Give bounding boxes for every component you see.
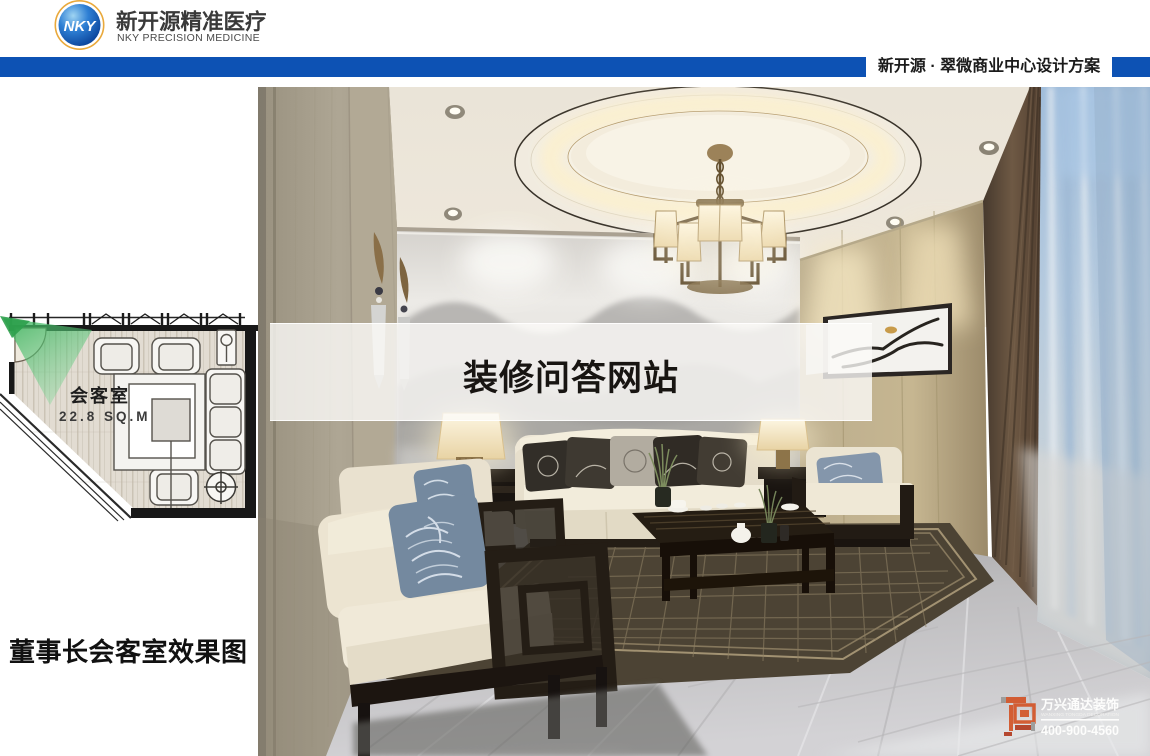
svg-text:会客室: 会客室 [70, 385, 130, 406]
svg-text:NKY: NKY [64, 18, 98, 35]
svg-text:22.8 SQ.M: 22.8 SQ.M [59, 409, 151, 424]
svg-text:WANXING TONGDA DECORATION: WANXING TONGDA DECORATION [1041, 712, 1119, 717]
svg-text:400-900-4560: 400-900-4560 [1041, 722, 1119, 738]
svg-text:万兴通达装饰: 万兴通达装饰 [1040, 697, 1119, 712]
